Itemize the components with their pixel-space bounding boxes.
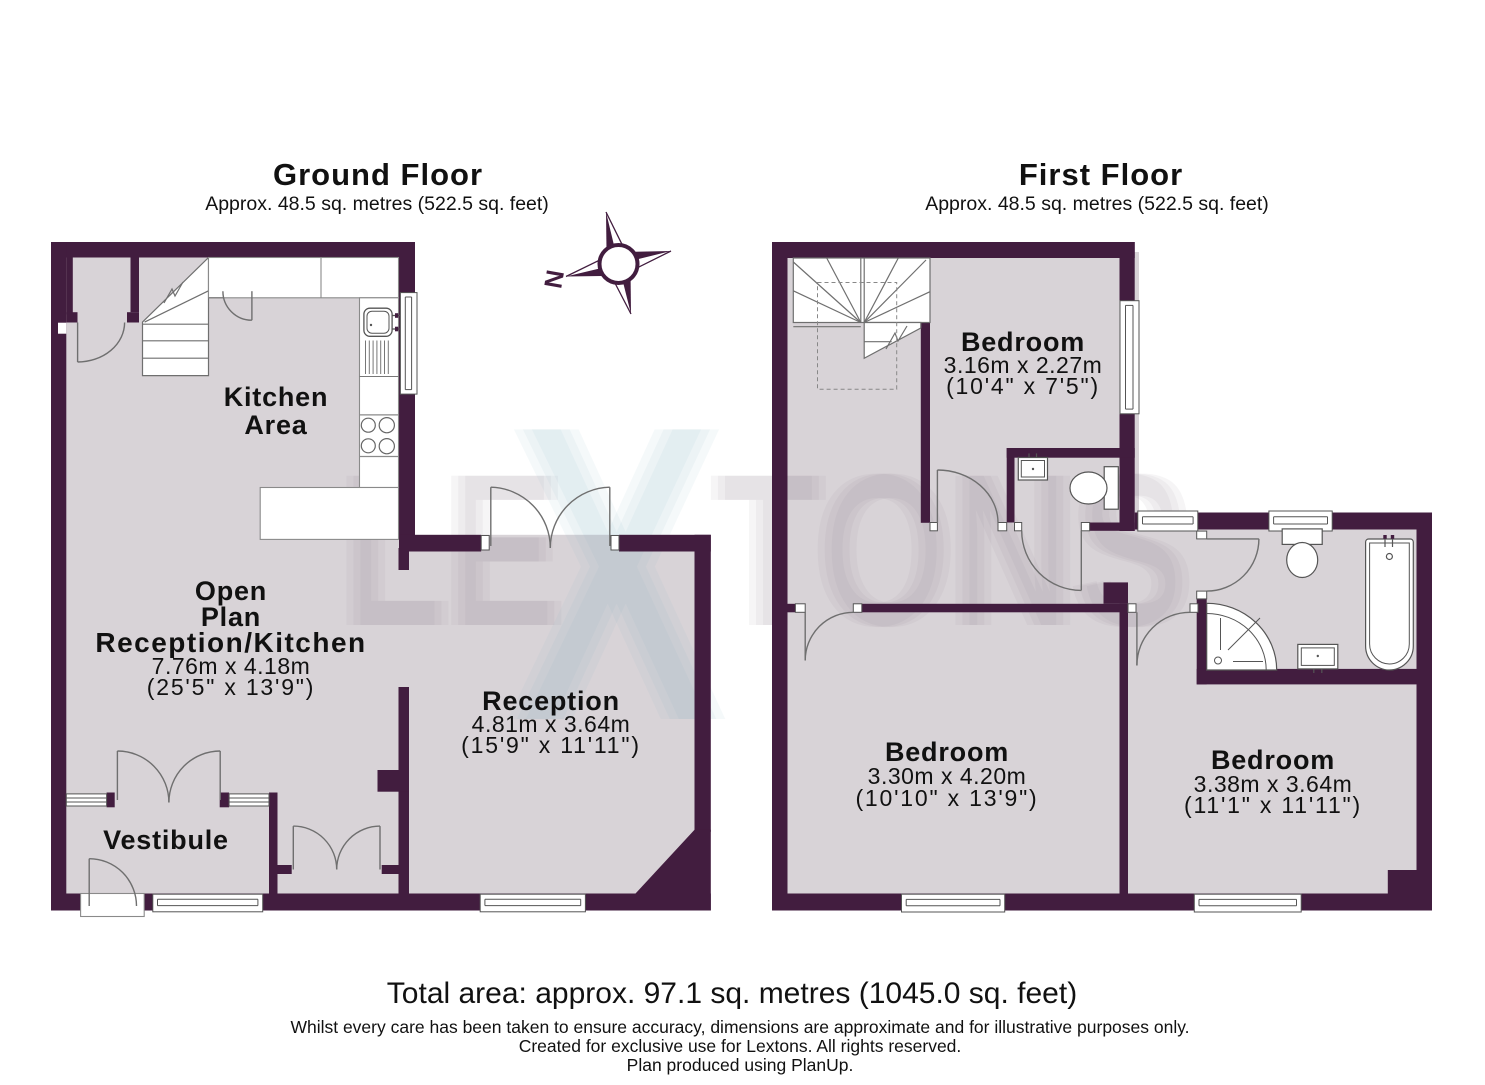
svg-text:Vestibule: Vestibule — [103, 825, 229, 855]
svg-text:Kitchen: Kitchen — [224, 382, 329, 412]
svg-text:Plan produced using PlanUp.: Plan produced using PlanUp. — [627, 1055, 854, 1075]
svg-text:Whilst every care has been tak: Whilst every care has been taken to ensu… — [290, 1017, 1189, 1037]
svg-text:Approx. 48.5 sq. metres (522.5: Approx. 48.5 sq. metres (522.5 sq. feet) — [925, 193, 1269, 215]
svg-text:Total area: approx. 97.1 sq. m: Total area: approx. 97.1 sq. metres (104… — [387, 977, 1077, 1010]
svg-text:Created for exclusive use for: Created for exclusive use for Lextons. A… — [519, 1036, 962, 1056]
svg-text:(10'4" x 7'5"): (10'4" x 7'5") — [946, 373, 1100, 399]
svg-text:Ground Floor: Ground Floor — [273, 157, 483, 192]
svg-text:First Floor: First Floor — [1019, 157, 1183, 192]
svg-text:Approx. 48.5 sq. metres (522.5: Approx. 48.5 sq. metres (522.5 sq. feet) — [205, 193, 549, 215]
svg-text:Area: Area — [244, 410, 307, 440]
svg-text:(10'10" x 13'9"): (10'10" x 13'9") — [855, 785, 1038, 811]
svg-text:(25'5" x 13'9"): (25'5" x 13'9") — [147, 674, 315, 700]
svg-text:(11'1" x 11'11"): (11'1" x 11'11") — [1184, 792, 1362, 818]
svg-text:(15'9" x 11'11"): (15'9" x 11'11") — [461, 732, 641, 758]
